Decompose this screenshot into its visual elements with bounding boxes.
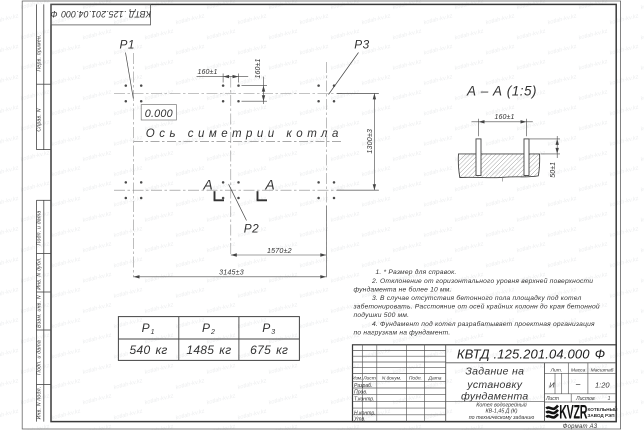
svg-text:kotlah-kv.kz: kotlah-kv.kz <box>299 226 329 239</box>
svg-text:50±1: 50±1 <box>550 162 557 178</box>
svg-text:КВТД .125.201.04.000Ф: КВТД .125.201.04.000Ф <box>457 346 605 361</box>
svg-text:kotlah-kv.kz: kotlah-kv.kz <box>330 272 360 285</box>
svg-text:kotlah-kv.kz: kotlah-kv.kz <box>20 181 50 194</box>
svg-text:kotlah-kv.kz: kotlah-kv.kz <box>113 226 143 239</box>
svg-text:kotlah-kv.kz: kotlah-kv.kz <box>206 211 236 224</box>
svg-text:P3: P3 <box>354 37 369 51</box>
svg-text:kotlah-kv.kz: kotlah-kv.kz <box>144 211 174 224</box>
svg-text:kotlah-kv.kz: kotlah-kv.kz <box>206 150 236 163</box>
svg-text:kotlah-kv.kz: kotlah-kv.kz <box>175 226 205 239</box>
svg-text:kotlah-kv.kz: kotlah-kv.kz <box>423 74 453 87</box>
svg-text:Масштаб: Масштаб <box>591 367 614 373</box>
svg-text:kotlah-kv.kz: kotlah-kv.kz <box>299 13 329 26</box>
svg-text:kotlah-kv.kz: kotlah-kv.kz <box>20 393 50 406</box>
svg-text:kotlah-kv.kz: kotlah-kv.kz <box>144 241 174 254</box>
svg-text:1570±2: 1570±2 <box>267 247 292 255</box>
svg-text:kotlah-kv.kz: kotlah-kv.kz <box>392 29 422 42</box>
svg-text:kotlah-kv.kz: kotlah-kv.kz <box>609 105 639 118</box>
svg-text:kotlah-kv.kz: kotlah-kv.kz <box>237 287 267 300</box>
svg-text:kotlah-kv.kz: kotlah-kv.kz <box>578 211 608 224</box>
svg-text:kotlah-kv.kz: kotlah-kv.kz <box>640 424 644 430</box>
svg-text:Пров.: Пров. <box>354 390 367 396</box>
svg-text:3. В случае отсутствия бетонно: 3. В случае отсутствия бетонного пола пл… <box>372 294 581 302</box>
svg-text:kotlah-kv.kz: kotlah-kv.kz <box>516 211 546 224</box>
svg-text:kotlah-kv.kz: kotlah-kv.kz <box>113 257 143 270</box>
svg-text:kotlah-kv.kz: kotlah-kv.kz <box>113 105 143 118</box>
svg-text:kotlah-kv.kz: kotlah-kv.kz <box>578 59 608 72</box>
svg-text:kotlah-kv.kz: kotlah-kv.kz <box>578 89 608 102</box>
svg-text:3145±3: 3145±3 <box>219 269 244 277</box>
svg-text:675кг: 675кг <box>250 343 288 357</box>
svg-text:P2: P2 <box>244 222 259 236</box>
svg-text:kotlah-kv.kz: kotlah-kv.kz <box>609 165 639 178</box>
svg-text:kotlah-kv.kz: kotlah-kv.kz <box>175 196 205 209</box>
svg-text:kotlah-kv.kz: kotlah-kv.kz <box>51 409 81 422</box>
svg-text:P1: P1 <box>142 321 156 336</box>
svg-text:Инв. N дубл.: Инв. N дубл. <box>37 257 43 289</box>
svg-text:P2: P2 <box>202 321 216 336</box>
svg-text:kotlah-kv.kz: kotlah-kv.kz <box>392 59 422 72</box>
svg-text:kotlah-kv.kz: kotlah-kv.kz <box>20 120 50 133</box>
svg-text:Задание на: Задание на <box>465 366 524 378</box>
svg-text:Котел водогрейный: Котел водогрейный <box>476 401 526 408</box>
svg-text:kotlah-kv.kz: kotlah-kv.kz <box>0 257 19 270</box>
svg-text:kotlah-kv.kz: kotlah-kv.kz <box>454 59 484 72</box>
svg-text:kotlah-kv.kz: kotlah-kv.kz <box>361 74 391 87</box>
svg-text:kotlah-kv.kz: kotlah-kv.kz <box>547 135 577 148</box>
svg-text:kotlah-kv.kz: kotlah-kv.kz <box>578 181 608 194</box>
svg-text:kotlah-kv.kz: kotlah-kv.kz <box>609 378 639 391</box>
svg-text:kotlah-kv.kz: kotlah-kv.kz <box>237 13 267 26</box>
svg-text:kotlah-kv.kz: kotlah-kv.kz <box>268 272 298 285</box>
svg-text:kotlah-kv.kz: kotlah-kv.kz <box>454 211 484 224</box>
svg-text:kotlah-kv.kz: kotlah-kv.kz <box>516 150 546 163</box>
svg-text:kotlah-kv.kz: kotlah-kv.kz <box>268 363 298 376</box>
svg-text:kotlah-kv.kz: kotlah-kv.kz <box>0 44 19 57</box>
svg-text:ЗАВОД РЭП: ЗАВОД РЭП <box>588 413 615 418</box>
svg-text:kotlah-kv.kz: kotlah-kv.kz <box>82 120 112 133</box>
svg-text:Подп. и дата: Подп. и дата <box>37 340 43 375</box>
svg-text:Подп. и дата: Подп. и дата <box>37 211 43 246</box>
svg-text:Утв.: Утв. <box>354 416 366 422</box>
svg-text:160±1: 160±1 <box>255 59 262 79</box>
svg-text:kotlah-kv.kz: kotlah-kv.kz <box>82 272 112 285</box>
svg-text:kotlah-kv.kz: kotlah-kv.kz <box>144 363 174 376</box>
svg-text:Взам. инв. N: Взам. инв. N <box>37 295 43 328</box>
svg-text:kotlah-kv.kz: kotlah-kv.kz <box>82 89 112 102</box>
svg-text:kotlah-kv.kz: kotlah-kv.kz <box>640 333 644 346</box>
svg-text:kotlah-kv.kz: kotlah-kv.kz <box>144 29 174 42</box>
svg-text:kotlah-kv.kz: kotlah-kv.kz <box>82 302 112 315</box>
svg-text:kotlah-kv.kz: kotlah-kv.kz <box>51 105 81 118</box>
svg-text:kotlah-kv.kz: kotlah-kv.kz <box>0 317 19 330</box>
svg-text:kotlah-kv.kz: kotlah-kv.kz <box>82 241 112 254</box>
svg-text:kotlah-kv.kz: kotlah-kv.kz <box>454 241 484 254</box>
svg-text:kotlah-kv.kz: kotlah-kv.kz <box>113 287 143 300</box>
svg-text:kotlah-kv.kz: kotlah-kv.kz <box>0 135 19 148</box>
svg-text:160±1: 160±1 <box>495 114 515 121</box>
svg-text:kotlah-kv.kz: kotlah-kv.kz <box>640 89 644 102</box>
svg-text:N докум.: N докум. <box>382 375 402 381</box>
svg-text:A: A <box>202 176 212 192</box>
svg-text:kotlah-kv.kz: kotlah-kv.kz <box>20 302 50 315</box>
svg-text:kotlah-kv.kz: kotlah-kv.kz <box>485 257 515 270</box>
svg-text:kotlah-kv.kz: kotlah-kv.kz <box>237 165 267 178</box>
svg-text:И: И <box>549 381 555 390</box>
svg-text:Масса: Масса <box>571 367 586 373</box>
svg-text:kotlah-kv.kz: kotlah-kv.kz <box>330 0 360 11</box>
svg-text:kotlah-kv.kz: kotlah-kv.kz <box>361 257 391 270</box>
svg-text:kotlah-kv.kz: kotlah-kv.kz <box>20 333 50 346</box>
svg-text:kotlah-kv.kz: kotlah-kv.kz <box>51 257 81 270</box>
svg-text:kotlah-kv.kz: kotlah-kv.kz <box>485 196 515 209</box>
svg-text:kotlah-kv.kz: kotlah-kv.kz <box>454 0 484 11</box>
svg-text:kotlah-kv.kz: kotlah-kv.kz <box>516 333 546 346</box>
svg-text:kotlah-kv.kz: kotlah-kv.kz <box>51 317 81 330</box>
svg-text:Ось симетрии котла: Ось симетрии котла <box>146 128 343 140</box>
svg-text:kotlah-kv.kz: kotlah-kv.kz <box>640 120 644 133</box>
svg-text:kotlah-kv.kz: kotlah-kv.kz <box>547 105 577 118</box>
svg-text:Разраб.: Разраб. <box>354 383 372 389</box>
svg-text:kotlah-kv.kz: kotlah-kv.kz <box>299 165 329 178</box>
svg-text:kotlah-kv.kz: kotlah-kv.kz <box>485 226 515 239</box>
svg-text:kotlah-kv.kz: kotlah-kv.kz <box>51 135 81 148</box>
svg-text:kotlah-kv.kz: kotlah-kv.kz <box>51 226 81 239</box>
svg-text:А – А (1:5): А – А (1:5) <box>466 83 537 98</box>
svg-text:kotlah-kv.kz: kotlah-kv.kz <box>547 44 577 57</box>
svg-text:kotlah-kv.kz: kotlah-kv.kz <box>175 317 205 330</box>
svg-text:KVZR: KVZR <box>559 402 588 423</box>
svg-text:kotlah-kv.kz: kotlah-kv.kz <box>454 181 484 194</box>
svg-text:kotlah-kv.kz: kotlah-kv.kz <box>144 89 174 102</box>
svg-text:kotlah-kv.kz: kotlah-kv.kz <box>237 105 267 118</box>
svg-text:kotlah-kv.kz: kotlah-kv.kz <box>609 196 639 209</box>
svg-text:kotlah-kv.kz: kotlah-kv.kz <box>0 105 19 118</box>
svg-text:kotlah-kv.kz: kotlah-kv.kz <box>144 302 174 315</box>
svg-text:kotlah-kv.kz: kotlah-kv.kz <box>578 29 608 42</box>
svg-text:kotlah-kv.kz: kotlah-kv.kz <box>361 13 391 26</box>
svg-text:Справ. N: Справ. N <box>37 108 43 131</box>
svg-text:kotlah-kv.kz: kotlah-kv.kz <box>299 257 329 270</box>
svg-text:1:20: 1:20 <box>595 381 610 390</box>
svg-text:kotlah-kv.kz: kotlah-kv.kz <box>0 196 19 209</box>
svg-text:kotlah-kv.kz: kotlah-kv.kz <box>237 378 267 391</box>
svg-text:kotlah-kv.kz: kotlah-kv.kz <box>268 0 298 11</box>
svg-text:kotlah-kv.kz: kotlah-kv.kz <box>516 29 546 42</box>
svg-text:1485кг: 1485кг <box>186 343 231 357</box>
svg-text:kotlah-kv.kz: kotlah-kv.kz <box>609 74 639 87</box>
svg-text:kotlah-kv.kz: kotlah-kv.kz <box>268 211 298 224</box>
svg-text:kotlah-kv.kz: kotlah-kv.kz <box>516 241 546 254</box>
svg-text:kotlah-kv.kz: kotlah-kv.kz <box>113 378 143 391</box>
svg-text:kotlah-kv.kz: kotlah-kv.kz <box>392 120 422 133</box>
svg-text:kotlah-kv.kz: kotlah-kv.kz <box>454 29 484 42</box>
svg-text:kotlah-kv.kz: kotlah-kv.kz <box>113 196 143 209</box>
svg-text:kotlah-kv.kz: kotlah-kv.kz <box>206 241 236 254</box>
svg-text:kotlah-kv.kz: kotlah-kv.kz <box>82 150 112 163</box>
svg-text:фундамента: фундамента <box>461 391 529 403</box>
svg-text:kotlah-kv.kz: kotlah-kv.kz <box>51 287 81 300</box>
svg-text:kotlah-kv.kz: kotlah-kv.kz <box>516 0 546 11</box>
svg-text:160±1: 160±1 <box>198 69 218 76</box>
svg-text:1: 1 <box>608 396 611 402</box>
svg-text:kotlah-kv.kz: kotlah-kv.kz <box>144 181 174 194</box>
svg-text:kotlah-kv.kz: kotlah-kv.kz <box>361 105 391 118</box>
svg-text:kotlah-kv.kz: kotlah-kv.kz <box>640 150 644 163</box>
svg-text:Лист: Лист <box>545 396 559 402</box>
svg-text:kotlah-kv.kz: kotlah-kv.kz <box>609 135 639 148</box>
svg-text:kotlah-kv.kz: kotlah-kv.kz <box>361 348 391 361</box>
svg-text:kotlah-kv.kz: kotlah-kv.kz <box>113 165 143 178</box>
svg-text:kotlah-kv.kz: kotlah-kv.kz <box>299 317 329 330</box>
svg-text:по нагрузкам на фундамент.: по нагрузкам на фундамент. <box>354 328 451 336</box>
svg-text:kotlah-kv.kz: kotlah-kv.kz <box>578 241 608 254</box>
svg-text:kotlah-kv.kz: kotlah-kv.kz <box>0 378 19 391</box>
svg-text:kotlah-kv.kz: kotlah-kv.kz <box>423 105 453 118</box>
svg-text:kotlah-kv.kz: kotlah-kv.kz <box>20 241 50 254</box>
svg-text:kotlah-kv.kz: kotlah-kv.kz <box>392 241 422 254</box>
svg-text:kotlah-kv.kz: kotlah-kv.kz <box>206 29 236 42</box>
svg-text:kotlah-kv.kz: kotlah-kv.kz <box>20 0 50 11</box>
svg-text:kotlah-kv.kz: kotlah-kv.kz <box>392 181 422 194</box>
svg-text:kotlah-kv.kz: kotlah-kv.kz <box>113 317 143 330</box>
svg-text:kotlah-kv.kz: kotlah-kv.kz <box>268 59 298 72</box>
svg-text:kotlah-kv.kz: kotlah-kv.kz <box>206 0 236 11</box>
svg-text:kotlah-kv.kz: kotlah-kv.kz <box>82 211 112 224</box>
svg-text:kotlah-kv.kz: kotlah-kv.kz <box>392 393 422 406</box>
svg-text:kotlah-kv.kz: kotlah-kv.kz <box>392 89 422 102</box>
svg-text:kotlah-kv.kz: kotlah-kv.kz <box>206 393 236 406</box>
svg-text:kotlah-kv.kz: kotlah-kv.kz <box>268 393 298 406</box>
svg-text:фундамента не более 10 мм.: фундамента не более 10 мм. <box>354 285 452 293</box>
svg-text:kotlah-kv.kz: kotlah-kv.kz <box>640 363 644 376</box>
svg-text:kotlah-kv.kz: kotlah-kv.kz <box>640 181 644 194</box>
svg-text:Изм.: Изм. <box>352 375 362 381</box>
svg-text:kotlah-kv.kz: kotlah-kv.kz <box>237 257 267 270</box>
svg-text:kotlah-kv.kz: kotlah-kv.kz <box>237 409 267 422</box>
svg-text:kotlah-kv.kz: kotlah-kv.kz <box>361 226 391 239</box>
svg-text:kotlah-kv.kz: kotlah-kv.kz <box>51 378 81 391</box>
svg-text:kotlah-kv.kz: kotlah-kv.kz <box>82 393 112 406</box>
svg-text:kotlah-kv.kz: kotlah-kv.kz <box>578 333 608 346</box>
svg-text:забетонировать. Расстояние от: забетонировать. Расстояние от осей крайн… <box>353 303 600 311</box>
svg-text:Формат А3: Формат А3 <box>563 424 598 430</box>
svg-text:kotlah-kv.kz: kotlah-kv.kz <box>392 363 422 376</box>
svg-text:kotlah-kv.kz: kotlah-kv.kz <box>20 29 50 42</box>
svg-text:kotlah-kv.kz: kotlah-kv.kz <box>609 257 639 270</box>
svg-text:kotlah-kv.kz: kotlah-kv.kz <box>113 409 143 422</box>
svg-text:Лист: Лист <box>362 375 376 381</box>
svg-text:kotlah-kv.kz: kotlah-kv.kz <box>206 302 236 315</box>
svg-text:kotlah-kv.kz: kotlah-kv.kz <box>578 0 608 11</box>
svg-text:kotlah-kv.kz: kotlah-kv.kz <box>20 89 50 102</box>
svg-text:kotlah-kv.kz: kotlah-kv.kz <box>516 181 546 194</box>
svg-text:kotlah-kv.kz: kotlah-kv.kz <box>144 59 174 72</box>
svg-text:Подп.: Подп. <box>409 375 422 381</box>
svg-text:0.000: 0.000 <box>145 108 173 120</box>
svg-text:kotlah-kv.kz: kotlah-kv.kz <box>423 257 453 270</box>
svg-text:540кг: 540кг <box>130 343 168 357</box>
svg-text:kotlah-kv.kz: kotlah-kv.kz <box>516 59 546 72</box>
svg-text:установку: установку <box>466 379 522 391</box>
svg-text:kotlah-kv.kz: kotlah-kv.kz <box>51 348 81 361</box>
svg-text:kotlah-kv.kz: kotlah-kv.kz <box>175 165 205 178</box>
svg-text:kotlah-kv.kz: kotlah-kv.kz <box>237 196 267 209</box>
svg-text:kotlah-kv.kz: kotlah-kv.kz <box>0 74 19 87</box>
svg-text:kotlah-kv.kz: kotlah-kv.kz <box>0 287 19 300</box>
svg-text:kotlah-kv.kz: kotlah-kv.kz <box>237 74 267 87</box>
svg-text:kotlah-kv.kz: kotlah-kv.kz <box>330 59 360 72</box>
svg-text:kotlah-kv.kz: kotlah-kv.kz <box>423 196 453 209</box>
svg-text:kotlah-kv.kz: kotlah-kv.kz <box>20 59 50 72</box>
svg-text:1. * Размер для справок.: 1. * Размер для справок. <box>376 268 457 276</box>
svg-text:kotlah-kv.kz: kotlah-kv.kz <box>547 74 577 87</box>
svg-text:A: A <box>264 176 274 192</box>
svg-text:kotlah-kv.kz: kotlah-kv.kz <box>299 287 329 300</box>
svg-text:kotlah-kv.kz: kotlah-kv.kz <box>299 348 329 361</box>
svg-text:kotlah-kv.kz: kotlah-kv.kz <box>113 74 143 87</box>
svg-text:kotlah-kv.kz: kotlah-kv.kz <box>423 165 453 178</box>
svg-text:kotlah-kv.kz: kotlah-kv.kz <box>640 272 644 285</box>
svg-text:Инв. N подл.: Инв. N подл. <box>37 387 43 420</box>
svg-text:kotlah-kv.kz: kotlah-kv.kz <box>82 333 112 346</box>
svg-text:kotlah-kv.kz: kotlah-kv.kz <box>20 150 50 163</box>
svg-text:kotlah-kv.kz: kotlah-kv.kz <box>175 44 205 57</box>
svg-text:kotlah-kv.kz: kotlah-kv.kz <box>51 44 81 57</box>
svg-text:kotlah-kv.kz: kotlah-kv.kz <box>299 105 329 118</box>
svg-text:kotlah-kv.kz: kotlah-kv.kz <box>485 13 515 26</box>
svg-text:kotlah-kv.kz: kotlah-kv.kz <box>423 44 453 57</box>
svg-text:kotlah-kv.kz: kotlah-kv.kz <box>0 409 19 422</box>
svg-text:kotlah-kv.kz: kotlah-kv.kz <box>330 150 360 163</box>
svg-text:kotlah-kv.kz: kotlah-kv.kz <box>330 211 360 224</box>
svg-text:kotlah-kv.kz: kotlah-kv.kz <box>175 409 205 422</box>
svg-text:kotlah-kv.kz: kotlah-kv.kz <box>299 409 329 422</box>
svg-text:kotlah-kv.kz: kotlah-kv.kz <box>609 287 639 300</box>
svg-text:kotlah-kv.kz: kotlah-kv.kz <box>361 165 391 178</box>
svg-text:kotlah-kv.kz: kotlah-kv.kz <box>175 287 205 300</box>
svg-text:P1: P1 <box>119 37 134 51</box>
svg-text:kotlah-kv.kz: kotlah-kv.kz <box>609 317 639 330</box>
svg-text:kotlah-kv.kz: kotlah-kv.kz <box>547 226 577 239</box>
svg-text:kotlah-kv.kz: kotlah-kv.kz <box>423 135 453 148</box>
svg-text:4. Фундамент под котел разраба: 4. Фундамент под котел разрабатывает про… <box>372 320 595 328</box>
svg-text:kotlah-kv.kz: kotlah-kv.kz <box>392 211 422 224</box>
svg-text:kotlah-kv.kz: kotlah-kv.kz <box>299 378 329 391</box>
svg-text:kotlah-kv.kz: kotlah-kv.kz <box>299 196 329 209</box>
svg-text:kotlah-kv.kz: kotlah-kv.kz <box>51 196 81 209</box>
svg-text:kotlah-kv.kz: kotlah-kv.kz <box>20 211 50 224</box>
svg-text:kotlah-kv.kz: kotlah-kv.kz <box>206 363 236 376</box>
svg-text:1300±3: 1300±3 <box>366 129 374 154</box>
svg-text:kotlah-kv.kz: kotlah-kv.kz <box>268 302 298 315</box>
svg-text:kotlah-kv.kz: kotlah-kv.kz <box>299 44 329 57</box>
svg-text:kotlah-kv.kz: kotlah-kv.kz <box>640 302 644 315</box>
svg-text:kotlah-kv.kz: kotlah-kv.kz <box>640 211 644 224</box>
svg-text:kotlah-kv.kz: kotlah-kv.kz <box>609 13 639 26</box>
svg-text:kotlah-kv.kz: kotlah-kv.kz <box>82 59 112 72</box>
svg-text:kotlah-kv.kz: kotlah-kv.kz <box>82 181 112 194</box>
svg-text:kotlah-kv.kz: kotlah-kv.kz <box>330 363 360 376</box>
svg-text:kotlah-kv.kz: kotlah-kv.kz <box>485 135 515 148</box>
svg-text:kotlah-kv.kz: kotlah-kv.kz <box>423 226 453 239</box>
svg-text:КОТЕЛЬНЫЙ: КОТЕЛЬНЫЙ <box>588 405 618 412</box>
svg-text:kotlah-kv.kz: kotlah-kv.kz <box>20 272 50 285</box>
svg-text:Листов: Листов <box>575 396 595 402</box>
svg-text:kotlah-kv.kz: kotlah-kv.kz <box>609 44 639 57</box>
svg-text:kotlah-kv.kz: kotlah-kv.kz <box>640 29 644 42</box>
svg-text:kotlah-kv.kz: kotlah-kv.kz <box>0 348 19 361</box>
svg-text:Перв. примен.: Перв. примен. <box>37 34 43 71</box>
svg-text:kotlah-kv.kz: kotlah-kv.kz <box>609 226 639 239</box>
svg-text:kotlah-kv.kz: kotlah-kv.kz <box>0 165 19 178</box>
svg-text:kotlah-kv.kz: kotlah-kv.kz <box>175 378 205 391</box>
svg-text:kotlah-kv.kz: kotlah-kv.kz <box>640 59 644 72</box>
svg-text:КВТД .125.201.04.000Ф: КВТД .125.201.04.000Ф <box>50 9 150 19</box>
svg-text:kotlah-kv.kz: kotlah-kv.kz <box>423 13 453 26</box>
svg-text:kotlah-kv.kz: kotlah-kv.kz <box>547 196 577 209</box>
svg-text:kotlah-kv.kz: kotlah-kv.kz <box>640 241 644 254</box>
svg-text:kotlah-kv.kz: kotlah-kv.kz <box>237 44 267 57</box>
svg-text:kotlah-kv.kz: kotlah-kv.kz <box>51 74 81 87</box>
svg-text:по техническому заданию: по техническому заданию <box>469 415 534 421</box>
svg-text:kotlah-kv.kz: kotlah-kv.kz <box>547 13 577 26</box>
svg-text:kotlah-kv.kz: kotlah-kv.kz <box>20 363 50 376</box>
svg-text:kotlah-kv.kz: kotlah-kv.kz <box>640 0 644 11</box>
svg-text:kotlah-kv.kz: kotlah-kv.kz <box>330 241 360 254</box>
svg-text:КВ-1,45 Д (К): КВ-1,45 Д (К) <box>485 409 517 415</box>
svg-text:kotlah-kv.kz: kotlah-kv.kz <box>82 363 112 376</box>
svg-text:kotlah-kv.kz: kotlah-kv.kz <box>299 74 329 87</box>
svg-text:kotlah-kv.kz: kotlah-kv.kz <box>578 120 608 133</box>
svg-text:Т.контр.: Т.контр. <box>354 397 375 403</box>
svg-text:kotlah-kv.kz: kotlah-kv.kz <box>144 272 174 285</box>
svg-text:kotlah-kv.kz: kotlah-kv.kz <box>0 13 19 26</box>
svg-text:kotlah-kv.kz: kotlah-kv.kz <box>578 150 608 163</box>
svg-text:kotlah-kv.kz: kotlah-kv.kz <box>485 44 515 57</box>
svg-text:kotlah-kv.kz: kotlah-kv.kz <box>361 196 391 209</box>
svg-text:kotlah-kv.kz: kotlah-kv.kz <box>423 348 453 361</box>
svg-text:Дата: Дата <box>428 375 442 381</box>
svg-text:P3: P3 <box>262 321 276 336</box>
svg-text:2. Отклонение от горизонтально: 2. Отклонение от горизонтального уровня … <box>371 277 593 285</box>
svg-text:kotlah-kv.kz: kotlah-kv.kz <box>609 348 639 361</box>
svg-text:kotlah-kv.kz: kotlah-kv.kz <box>392 0 422 11</box>
svg-text:kotlah-kv.kz: kotlah-kv.kz <box>268 89 298 102</box>
svg-text:Лит.: Лит. <box>550 367 562 373</box>
svg-text:kotlah-kv.kz: kotlah-kv.kz <box>392 150 422 163</box>
svg-text:–: – <box>575 380 581 389</box>
svg-text:kotlah-kv.kz: kotlah-kv.kz <box>206 89 236 102</box>
svg-text:kotlah-kv.kz: kotlah-kv.kz <box>82 29 112 42</box>
svg-text:kotlah-kv.kz: kotlah-kv.kz <box>51 165 81 178</box>
svg-text:kotlah-kv.kz: kotlah-kv.kz <box>640 393 644 406</box>
svg-text:kotlah-kv.kz: kotlah-kv.kz <box>175 257 205 270</box>
svg-text:kotlah-kv.kz: kotlah-kv.kz <box>268 150 298 163</box>
svg-text:kotlah-kv.kz: kotlah-kv.kz <box>144 393 174 406</box>
svg-text:kotlah-kv.kz: kotlah-kv.kz <box>175 13 205 26</box>
svg-text:kotlah-kv.kz: kotlah-kv.kz <box>0 226 19 239</box>
svg-text:kotlah-kv.kz: kotlah-kv.kz <box>454 333 484 346</box>
svg-text:kotlah-kv.kz: kotlah-kv.kz <box>268 29 298 42</box>
svg-text:kotlah-kv.kz: kotlah-kv.kz <box>175 105 205 118</box>
svg-text:kotlah-kv.kz: kotlah-kv.kz <box>547 257 577 270</box>
svg-text:подушки 500 мм.: подушки 500 мм. <box>354 311 410 319</box>
svg-text:kotlah-kv.kz: kotlah-kv.kz <box>144 150 174 163</box>
